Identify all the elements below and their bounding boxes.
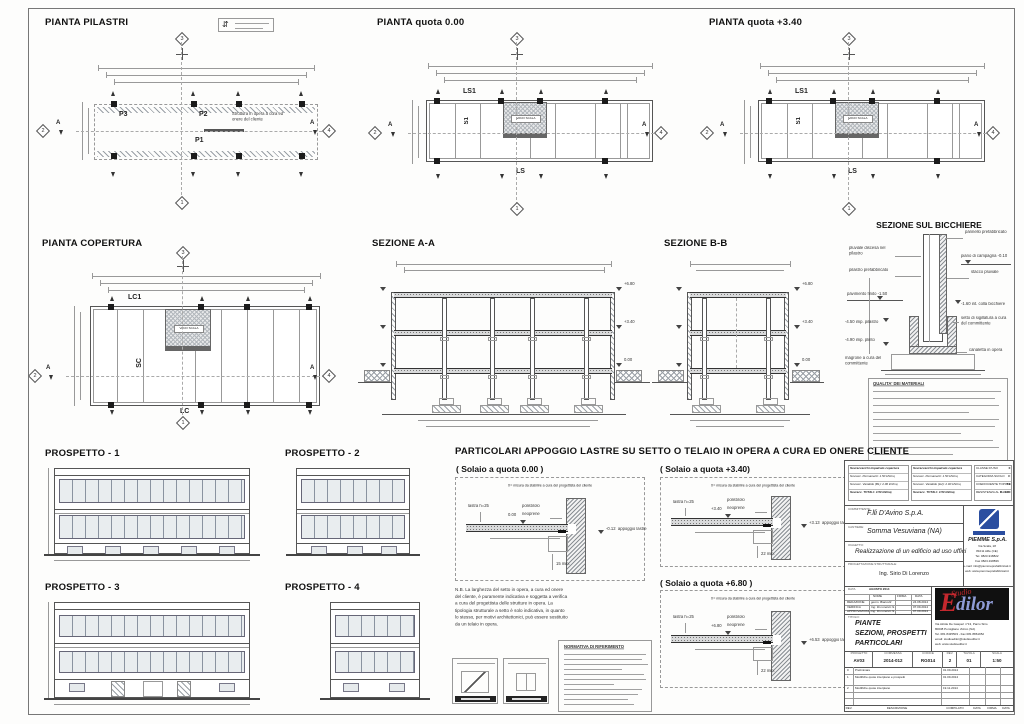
section-cut-a-left: A: [56, 120, 60, 126]
piemme-name: PIEMME S.p.A.: [963, 537, 1012, 543]
beam-label-ls1: LS1: [795, 88, 808, 95]
drawing-prospetto-4: PROSPETTO - 4: [278, 578, 428, 710]
wall-left: [687, 292, 692, 400]
wall-right: [610, 292, 615, 400]
grid-marker-right: 4: [654, 126, 668, 140]
polistirolo-label: polistirolo: [522, 504, 540, 508]
drawing-sheet: PIANTA PILASTRI ⇵ 3 P3 P2 P1 Struttura i…: [0, 0, 1024, 724]
neoprene-pad: [763, 641, 771, 644]
floor-line: [847, 300, 903, 301]
beam-label-ls: LS: [848, 168, 857, 175]
stairwell-vano-scala: VANO SCALA: [165, 309, 211, 347]
grid-marker-left: 2: [700, 126, 714, 140]
codes-row: PROGETTOAV03 COMMESSA2014-012 CODICERG01…: [845, 651, 1013, 667]
drawing-pianta-q000: PIANTA quota 0.00 3 LS1 VANO SCALA S1 LS…: [368, 12, 670, 227]
drawing-prospetto-3: PROSPETTO - 3: [38, 578, 266, 710]
progettazione-value: Ing. Sirio Di Lorenzo: [845, 571, 963, 577]
titleblock: Sovraccarichi impalcato copertura Sovrac…: [844, 460, 1014, 712]
titolo-label: TITOLO:: [848, 616, 860, 619]
drawing-title: PROSPETTO - 3: [45, 582, 120, 593]
mini-detail-box-2: [503, 658, 549, 704]
grid-marker-right: 4: [322, 124, 336, 138]
drawing-title: PROSPETTO - 2: [285, 448, 360, 459]
drawing-pianta-copertura: PIANTA COPERTURA 3 LC1 VANO SCALA SC LC …: [30, 230, 336, 430]
stair-landing: [165, 347, 211, 351]
detail-label-000: ( Solaio a quota 0.00 ): [456, 464, 543, 474]
drawing-title: SEZIONE SUL BICCHIERE: [843, 220, 1015, 230]
polistirolo-label: polistirolo: [727, 498, 745, 502]
normativa-title: NORMATIVA DI RIFERIMENTO: [564, 645, 624, 649]
section-cut-a-left: A: [46, 365, 50, 371]
stair-landing: [835, 134, 879, 138]
legend-box: ⇵: [218, 18, 274, 32]
notes-title: QUALITA' DEI MATERIALI: [873, 382, 924, 386]
facade: [54, 468, 250, 554]
normativa-box: NORMATIVA DI RIFERIMENTO: [558, 640, 652, 712]
dim-line: [48, 468, 49, 554]
oggetto-value: Realizzazione di un edificio ad uso uffi…: [855, 548, 966, 555]
drawing-sezione-bb: SEZIONE B-B +6.80 +3.40 0.00: [650, 230, 832, 432]
ground-slab: [394, 368, 612, 374]
drawing-sezione-aa: SEZIONE A-A +6.80 +3.40 0.00: [358, 230, 650, 432]
slab-label-s1: S1: [796, 117, 802, 124]
pillar-label-p3: P3: [119, 111, 128, 118]
mid-slab: [394, 330, 612, 336]
level-bearing: -0.12 appoggio lastre: [606, 527, 647, 531]
drawing-prospetto-1: PROSPETTO - 1: [38, 444, 266, 566]
oggetto-label: OGGETTO:: [848, 544, 864, 547]
detail-label-680: ( Solaio a quota +6.80 ): [660, 578, 752, 588]
pillar-label-p2: P2: [199, 111, 208, 118]
grid-marker-top: 3: [176, 246, 190, 260]
facade: [330, 602, 420, 698]
section-cut-a-left: A: [388, 122, 392, 128]
wall-left: [391, 292, 396, 400]
neoprene-label: neoprene: [522, 512, 540, 516]
grid-marker-right: 4: [322, 369, 336, 383]
grid-marker-left: 2: [368, 126, 382, 140]
ground-line: [44, 698, 260, 700]
grid-marker-bottom: 1: [176, 416, 190, 430]
stairwell-vano-scala: VANO SCALA: [835, 102, 879, 134]
beam-label-ls: LS: [516, 168, 525, 175]
pocket: [753, 647, 773, 661]
drawing-title: PIANTA PILASTRI: [45, 17, 128, 28]
grid-marker-top: 3: [510, 32, 524, 46]
piemme-banner: [973, 531, 1005, 535]
drawing-pianta-pilastri: PIANTA PILASTRI ⇵ 3 P3 P2 P1 Struttura i…: [36, 12, 338, 224]
roof-slab: [394, 292, 612, 298]
detail-solaio-680: X= misura da stabilire a cura del proget…: [660, 590, 846, 688]
level-top: +3.40: [711, 507, 722, 511]
drawing-title: SEZIONE B-B: [664, 238, 727, 249]
beam-label-ls1: LS1: [463, 88, 476, 95]
grid-marker-right: 4: [986, 126, 1000, 140]
ground-line: [286, 554, 420, 556]
drawing-title: PIANTA quota 0.00: [377, 17, 464, 28]
pocket: [753, 530, 773, 544]
beam-label-lc1: LC1: [128, 294, 141, 301]
wall-right: [784, 292, 789, 400]
loads-table-1: Sovraccarichi impalcato copertura Sovrac…: [848, 465, 909, 501]
slab: [466, 524, 568, 532]
polistirolo-label: polistirolo: [727, 615, 745, 619]
view-direction-icon: ⇵: [222, 20, 229, 29]
neoprene-pad: [763, 524, 771, 527]
lastra-label: lastra h=25: [468, 504, 489, 508]
level-top: +6.80: [711, 624, 722, 628]
slab-label-sc: SC: [136, 358, 143, 368]
detail-label-340: ( Solaio a quota +3.40): [660, 464, 750, 474]
titolo-line-3: PARTICOLARI: [855, 640, 902, 647]
particolari-heading: PARTICOLARI APPOGGIO LASTRE SU SETTO O T…: [455, 446, 909, 457]
piemme-logo: [979, 509, 999, 529]
min-dim: 15 min.: [556, 562, 570, 566]
mini-detail-box-1: [452, 658, 498, 704]
wall: [771, 496, 791, 560]
pocket: [548, 536, 568, 552]
drawing-title: PIANTA quota +3.40: [709, 17, 802, 28]
grid-marker-top: 3: [175, 32, 189, 46]
loads-table-2: Sovraccarichi impalcato copertura Sovrac…: [911, 465, 972, 501]
detail-solaio-340: X= misura da stabilire a cura del proget…: [660, 477, 846, 567]
section-cut-a-left: A: [720, 122, 724, 128]
pillar-label-p1: P1: [195, 137, 204, 144]
lastra-label: lastra h=25: [673, 615, 694, 619]
neoprene-label: neoprene: [727, 506, 745, 510]
stair-landing: [503, 134, 547, 138]
section-cut-a-right: A: [310, 120, 314, 126]
drawing-title: PROSPETTO - 1: [45, 448, 120, 459]
drawing-title: PROSPETTO - 4: [285, 582, 360, 593]
neoprene-label: neoprene: [727, 623, 745, 627]
section-cut-a-right: A: [974, 122, 978, 128]
titolo-line-2: SEZIONI, PROSPETTI: [855, 630, 927, 637]
slab: [671, 518, 773, 526]
min-dim: 22 min.: [761, 552, 775, 556]
class-table: CLASSE D'USOII CATEGORIA SUOLOC COEFFICI…: [974, 465, 1012, 501]
cantiere-label: CANTIERE:: [848, 526, 864, 529]
ground-line: [320, 698, 430, 700]
lastra-label: lastra h=25: [673, 500, 694, 504]
neoprene-pad: [558, 530, 566, 533]
titolo-line-1: PIANTE: [855, 620, 881, 627]
drawing-prospetto-2: PROSPETTO - 2: [278, 444, 428, 566]
grid-marker-left: 2: [36, 124, 50, 138]
dim-line: [869, 278, 870, 354]
stair-line: [736, 298, 737, 368]
section-cut-a-right: A: [310, 365, 314, 371]
section-cut-a-right: A: [642, 122, 646, 128]
facade: [296, 468, 410, 554]
client-note: Struttura in opera a cura ed onere del c…: [232, 112, 292, 123]
cantiere-value: Somma Vesuviana (NA): [867, 528, 942, 535]
grid-marker-top: 3: [842, 32, 856, 46]
drawing-pianta-q340: PIANTA quota +3.40 3 LS1 VANO SCALA S1 L…: [700, 12, 1002, 227]
precast-panel: [939, 234, 947, 334]
detail-solaio-000: X= misura da stabilire a cura del proget…: [455, 477, 645, 581]
dim-line: [48, 602, 49, 698]
level-top: 0.00: [508, 513, 516, 517]
ground-line: [44, 554, 260, 556]
progettazione-label: PROGETTAZIONE STRUTTURALE:: [848, 563, 897, 566]
edilor-logo: Studio E dilor: [935, 588, 1009, 620]
slab-label-s1: S1: [464, 117, 470, 124]
grid-marker-bottom: 1: [175, 196, 189, 210]
slab: [671, 635, 773, 643]
drawing-title: PIANTA COPERTURA: [42, 238, 142, 249]
nb-note: N.B. La larghezza del setto in opera, a …: [455, 586, 568, 626]
facade: [54, 602, 250, 698]
stairwell-vano-scala: VANO SCALA: [503, 102, 547, 134]
ground-line: [961, 264, 1011, 265]
grid-marker-bottom: 1: [510, 202, 524, 216]
grid-marker-left: 2: [28, 369, 42, 383]
drawing-sezione-bicchiere: SEZIONE SUL BICCHIERE pannello prefabbri…: [843, 214, 1015, 384]
min-dim: 22 min.: [761, 669, 775, 673]
drawing-title: SEZIONE A-A: [372, 238, 435, 249]
committente-value: F.lli D'Avino S.p.A.: [867, 510, 924, 517]
